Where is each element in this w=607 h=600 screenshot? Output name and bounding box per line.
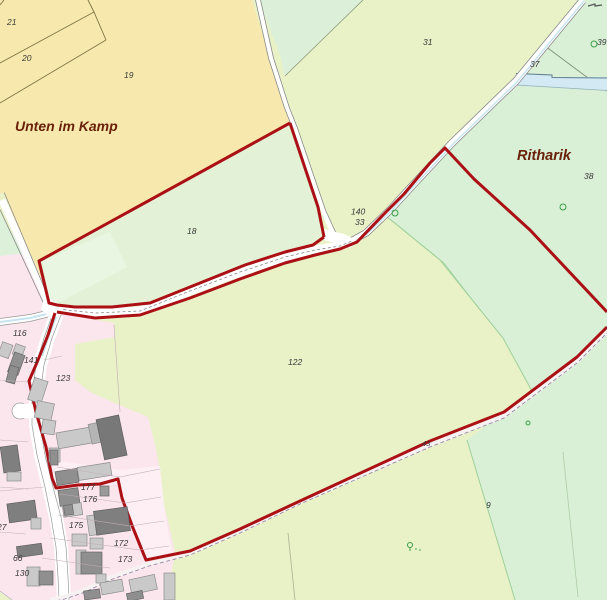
svg-text:31: 31 [423,37,433,47]
svg-text:66: 66 [13,553,23,563]
svg-text:122: 122 [288,357,302,367]
svg-text:175: 175 [69,520,83,530]
svg-text:116: 116 [13,328,27,338]
svg-text:Unten im Kamp: Unten im Kamp [15,118,118,134]
svg-text:38: 38 [584,171,594,181]
svg-text:140: 140 [351,207,365,217]
svg-text:130: 130 [15,568,29,578]
svg-text:123: 123 [56,373,70,383]
svg-text:20: 20 [21,53,32,63]
svg-text:172: 172 [114,538,128,548]
svg-text:141: 141 [24,355,38,365]
svg-text:39: 39 [597,37,607,47]
svg-text:27: 27 [0,522,7,532]
svg-text:37: 37 [530,59,540,69]
svg-text:Ritharik: Ritharik [517,148,572,164]
svg-text:43: 43 [422,439,431,448]
svg-text:176: 176 [83,494,97,504]
svg-text:21: 21 [6,17,17,27]
svg-text:18: 18 [187,226,197,236]
svg-text:33: 33 [355,217,365,227]
svg-text:173: 173 [118,554,132,564]
svg-text:9: 9 [486,500,491,510]
svg-text:19: 19 [124,70,134,80]
svg-text:177: 177 [81,482,95,492]
